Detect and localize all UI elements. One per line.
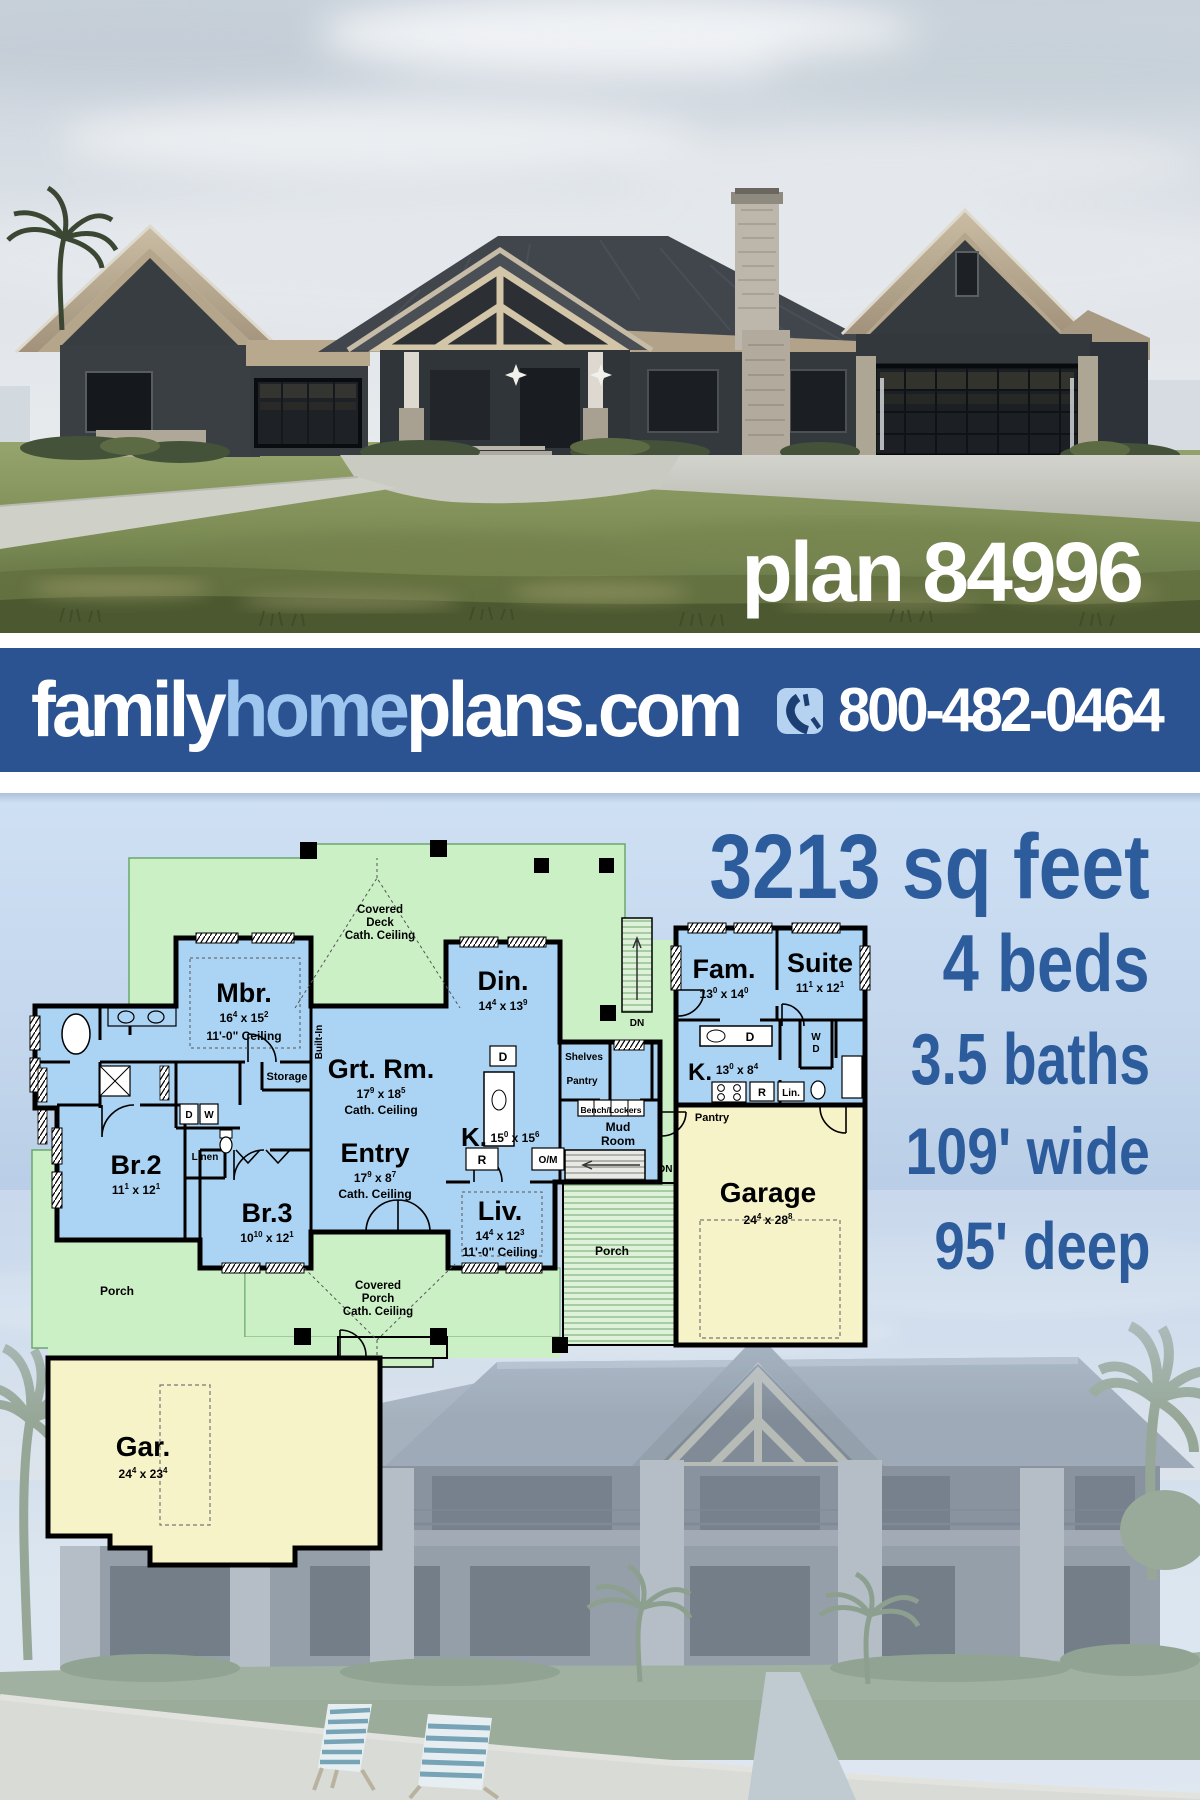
svg-text:Linen: Linen xyxy=(192,1152,219,1163)
svg-text:Din.: Din. xyxy=(478,966,529,996)
svg-text:130 x 84: 130 x 84 xyxy=(716,1062,759,1077)
svg-text:Lin.: Lin. xyxy=(782,1088,800,1099)
svg-text:Liv.: Liv. xyxy=(478,1196,523,1226)
svg-text:Suite: Suite xyxy=(787,948,853,978)
svg-text:144 x 139: 144 x 139 xyxy=(479,998,529,1013)
svg-text:Built-In: Built-In xyxy=(314,1025,325,1059)
svg-text:R: R xyxy=(758,1087,766,1099)
svg-text:Pantry: Pantry xyxy=(566,1076,598,1087)
svg-text:Porch: Porch xyxy=(595,1244,629,1258)
svg-text:D: D xyxy=(499,1050,508,1064)
svg-text:150 x 156: 150 x 156 xyxy=(491,1130,541,1145)
svg-text:1010 x 121: 1010 x 121 xyxy=(240,1230,294,1245)
svg-text:W: W xyxy=(204,1110,214,1121)
svg-text:R: R xyxy=(478,1153,487,1167)
svg-text:Cath. Ceiling: Cath. Ceiling xyxy=(345,930,415,942)
svg-text:Pantry: Pantry xyxy=(695,1112,730,1124)
svg-text:Cath. Ceiling: Cath. Ceiling xyxy=(344,1103,417,1117)
svg-text:111 x 121: 111 x 121 xyxy=(112,1182,161,1197)
svg-text:W: W xyxy=(811,1032,821,1043)
svg-text:O/M: O/M xyxy=(539,1155,558,1166)
svg-text:D: D xyxy=(185,1110,192,1121)
svg-text:Storage: Storage xyxy=(267,1071,308,1083)
svg-text:Porch: Porch xyxy=(362,1293,395,1305)
svg-text:144 x 123: 144 x 123 xyxy=(476,1228,526,1243)
svg-text:11'-0" Ceiling: 11'-0" Ceiling xyxy=(206,1029,281,1043)
svg-text:Cath. Ceiling: Cath. Ceiling xyxy=(343,1306,413,1318)
svg-text:164 x 152: 164 x 152 xyxy=(220,1010,270,1025)
svg-text:Cath. Ceiling: Cath. Ceiling xyxy=(338,1187,411,1201)
svg-text:Gar.: Gar. xyxy=(116,1431,170,1462)
svg-text:111 x 121: 111 x 121 xyxy=(796,980,845,995)
svg-text:Entry: Entry xyxy=(340,1138,409,1168)
svg-text:Fam.: Fam. xyxy=(692,954,755,984)
svg-text:244 x 288: 244 x 288 xyxy=(744,1212,794,1227)
svg-text:D: D xyxy=(812,1044,819,1055)
svg-text:Br.3: Br.3 xyxy=(241,1198,292,1228)
svg-text:Room: Room xyxy=(601,1134,635,1148)
svg-text:DN: DN xyxy=(630,1018,644,1029)
svg-text:179 x 87: 179 x 87 xyxy=(354,1170,397,1185)
svg-text:179 x 185: 179 x 185 xyxy=(357,1086,407,1101)
svg-text:DN: DN xyxy=(658,1164,672,1175)
svg-text:Br.2: Br.2 xyxy=(110,1150,161,1180)
svg-text:D: D xyxy=(746,1030,755,1044)
svg-text:K.: K. xyxy=(688,1059,712,1086)
svg-text:Garage: Garage xyxy=(720,1177,817,1208)
svg-text:130 x 140: 130 x 140 xyxy=(700,986,750,1001)
svg-text:Mud: Mud xyxy=(606,1120,631,1134)
svg-text:Mbr.: Mbr. xyxy=(216,978,272,1008)
svg-text:K.: K. xyxy=(461,1122,487,1152)
svg-text:11'-0" Ceiling: 11'-0" Ceiling xyxy=(462,1245,537,1259)
svg-text:plan 84996: plan 84996 xyxy=(741,525,1141,619)
svg-text:Shelves: Shelves xyxy=(565,1052,603,1063)
svg-text:Covered: Covered xyxy=(355,1280,401,1292)
svg-text:Covered: Covered xyxy=(357,904,403,916)
svg-text:Porch: Porch xyxy=(100,1284,134,1298)
svg-text:244 x 234: 244 x 234 xyxy=(119,1466,169,1481)
svg-text:Bench/Lockers: Bench/Lockers xyxy=(581,1105,642,1115)
svg-text:Grt. Rm.: Grt. Rm. xyxy=(328,1054,435,1084)
svg-text:Deck: Deck xyxy=(366,917,394,929)
